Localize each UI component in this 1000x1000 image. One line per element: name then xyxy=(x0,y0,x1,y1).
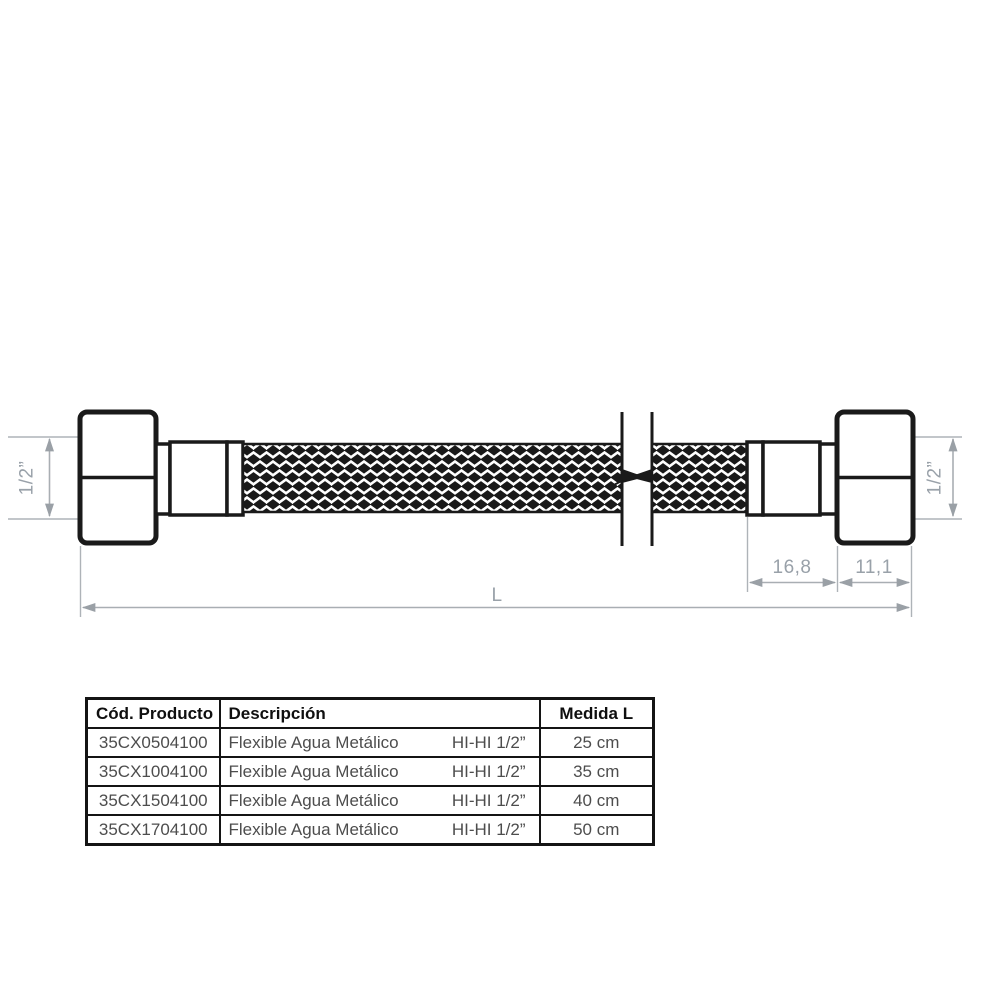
col-header-cod-producto: Cód. Producto xyxy=(87,699,220,729)
product-measure: 25 cm xyxy=(540,728,654,757)
product-description: Flexible Agua Metálico xyxy=(229,787,399,814)
col-header-descripcion: Descripción xyxy=(220,699,540,729)
product-spec: HI-HI 1/2” xyxy=(452,758,526,785)
product-description: Flexible Agua Metálico xyxy=(229,758,399,785)
product-description-cell: Flexible Agua Metálico HI-HI 1/2” xyxy=(220,728,540,757)
braided-hose-left-segment xyxy=(243,444,622,512)
product-spec: HI-HI 1/2” xyxy=(452,729,526,756)
braided-hose-right-segment xyxy=(652,444,747,512)
product-spec: HI-HI 1/2” xyxy=(452,787,526,814)
left-collar xyxy=(170,442,227,515)
nut-dimension-label: 11,1 xyxy=(855,557,893,578)
product-table: Cód. Producto Descripción Medida L 35CX0… xyxy=(85,697,655,846)
product-description-cell: Flexible Agua Metálico HI-HI 1/2” xyxy=(220,815,540,845)
product-description: Flexible Agua Metálico xyxy=(229,729,399,756)
page: 1/2” 1/2” 16,8 11,1 L xyxy=(0,0,1000,1000)
right-neck xyxy=(820,444,837,514)
product-spec: HI-HI 1/2” xyxy=(452,816,526,843)
hose-technical-drawing: 1/2” 1/2” 16,8 11,1 L xyxy=(0,0,1000,680)
product-code: 35CX1704100 xyxy=(87,815,220,845)
table-header-row: Cód. Producto Descripción Medida L xyxy=(87,699,654,729)
table-row: 35CX0504100 Flexible Agua Metálico HI-HI… xyxy=(87,728,654,757)
hose-assembly xyxy=(80,412,913,546)
table-row: 35CX1004100 Flexible Agua Metálico HI-HI… xyxy=(87,757,654,786)
collar-dimension-label: 16,8 xyxy=(773,557,812,578)
product-measure: 40 cm xyxy=(540,786,654,815)
right-thread-dimension-label: 1/2” xyxy=(925,461,946,496)
table-row: 35CX1504100 Flexible Agua Metálico HI-HI… xyxy=(87,786,654,815)
product-measure: 50 cm xyxy=(540,815,654,845)
product-measure: 35 cm xyxy=(540,757,654,786)
product-description-cell: Flexible Agua Metálico HI-HI 1/2” xyxy=(220,786,540,815)
product-code: 35CX1004100 xyxy=(87,757,220,786)
col-header-medida-l: Medida L xyxy=(540,699,654,729)
product-code: 35CX0504100 xyxy=(87,728,220,757)
table-row: 35CX1704100 Flexible Agua Metálico HI-HI… xyxy=(87,815,654,845)
product-description: Flexible Agua Metálico xyxy=(229,816,399,843)
right-crimp-ring xyxy=(747,442,763,515)
length-dimension-label: L xyxy=(491,585,502,606)
product-description-cell: Flexible Agua Metálico HI-HI 1/2” xyxy=(220,757,540,786)
left-thread-dimension-label: 1/2” xyxy=(17,461,38,496)
left-neck xyxy=(156,444,170,514)
left-crimp-ring xyxy=(227,442,243,515)
product-code: 35CX1504100 xyxy=(87,786,220,815)
right-collar xyxy=(763,442,820,515)
